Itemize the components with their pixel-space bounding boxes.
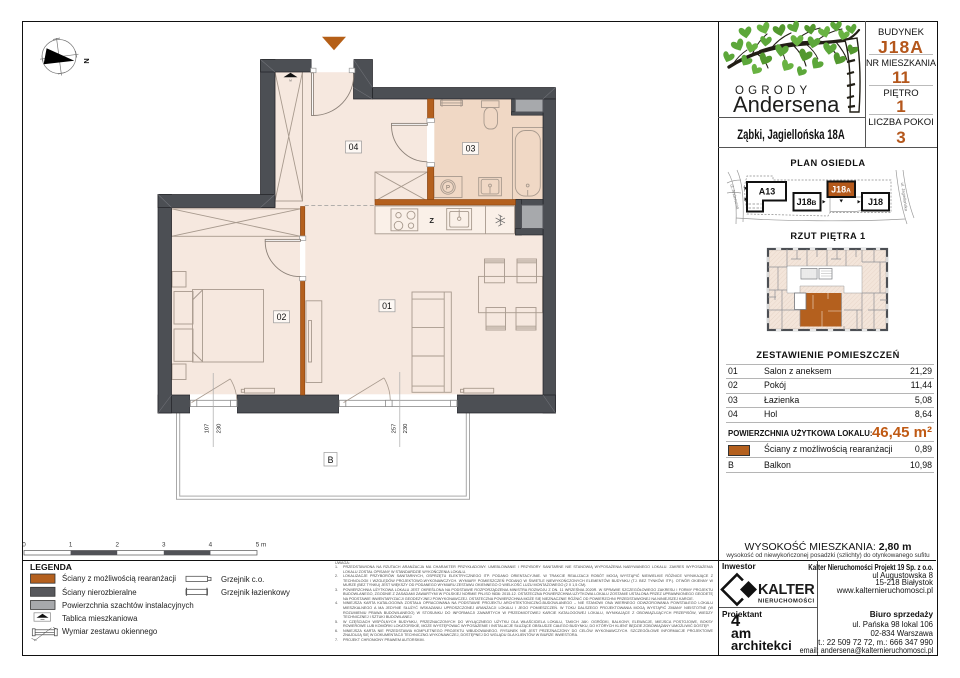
svg-text:ul. Andersena: ul. Andersena <box>729 184 741 211</box>
svg-text:KALTER: KALTER <box>758 582 815 598</box>
svg-text:A13: A13 <box>759 187 776 197</box>
svg-text:ul. Jagiellońska: ul. Jagiellońska <box>900 182 909 212</box>
svg-text:J18: J18 <box>868 197 883 207</box>
svg-text:NIERUCHOMOŚCI: NIERUCHOMOŚCI <box>758 598 815 605</box>
